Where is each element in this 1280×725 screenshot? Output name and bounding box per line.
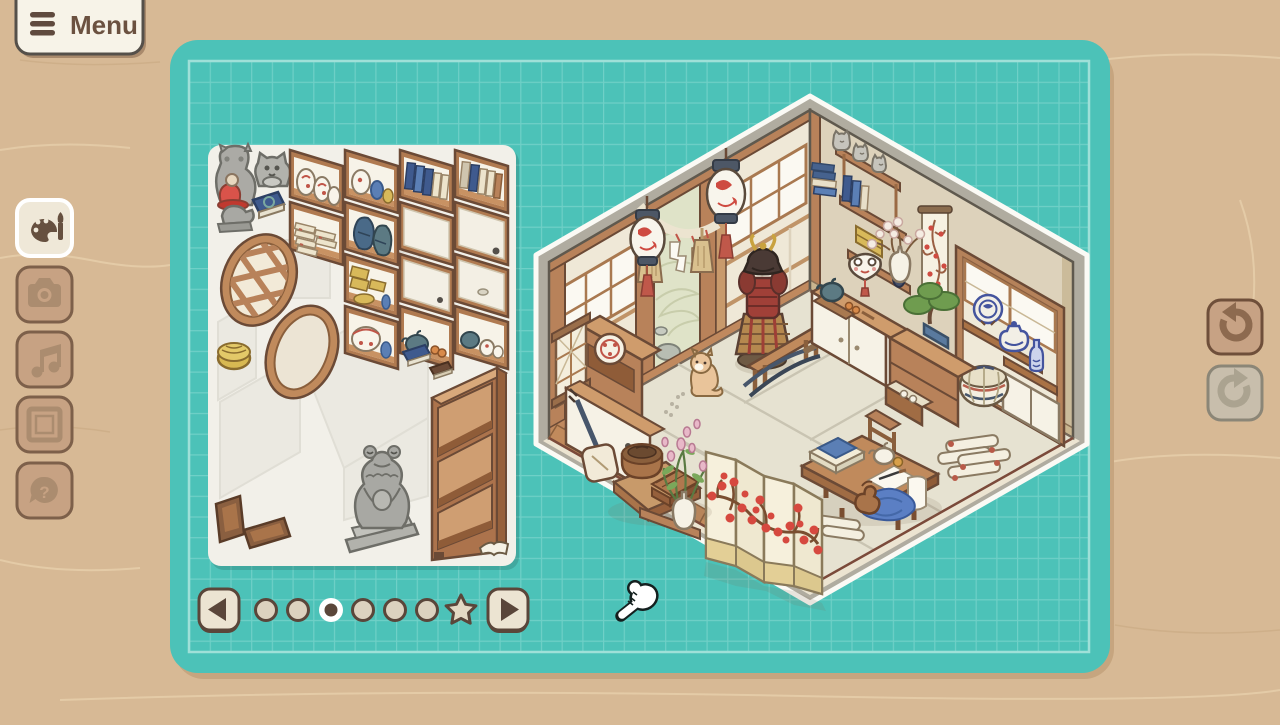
svg-text:Menu: Menu xyxy=(70,10,138,40)
svg-text:?: ? xyxy=(39,483,49,502)
